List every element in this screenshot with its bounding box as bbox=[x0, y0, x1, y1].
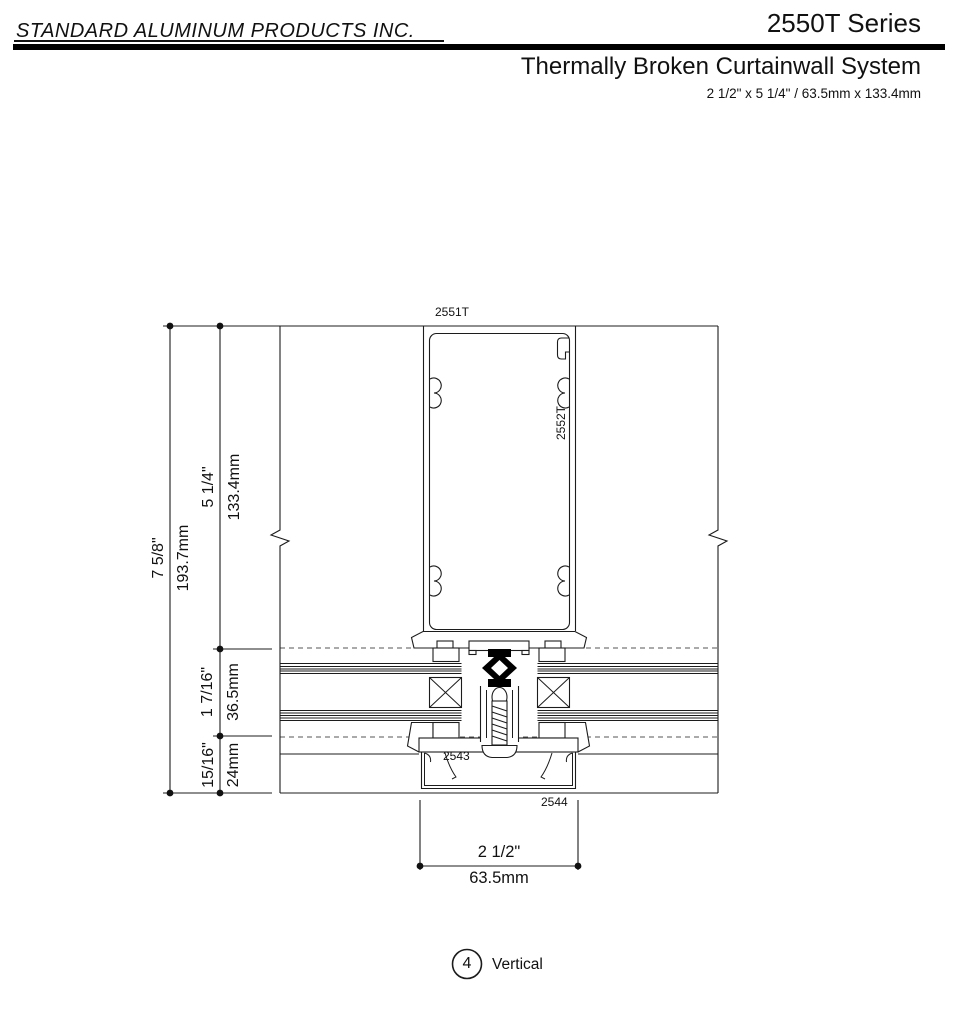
snap-leg-right bbox=[541, 753, 552, 779]
label-adapter: 2552T bbox=[553, 393, 569, 453]
thermal-break bbox=[482, 649, 517, 687]
gasket-lower-left bbox=[433, 723, 459, 739]
wall-line-right bbox=[709, 326, 727, 793]
drawing-sheet: STANDARD ALUMINUM PRODUCTS INC. 2550T Se… bbox=[0, 0, 957, 1024]
dim-bottom-inches: 15/16" bbox=[199, 705, 219, 825]
dim-overall-inches: 7 5/8" bbox=[149, 498, 169, 618]
screw-head bbox=[482, 746, 517, 758]
gasket-lower-right bbox=[539, 723, 565, 739]
dim-bottom-mm: 24mm bbox=[224, 705, 244, 825]
gasket-right bbox=[539, 648, 565, 662]
dim-width-mm: 63.5mm bbox=[449, 869, 549, 888]
detail-name: Vertical bbox=[492, 956, 543, 974]
dim-top-inches: 5 1/4" bbox=[199, 427, 219, 547]
detail-number: 4 bbox=[452, 955, 482, 973]
dim-width-inches: 2 1/2" bbox=[449, 843, 549, 862]
glazing-right bbox=[538, 664, 719, 721]
mullion-body bbox=[424, 326, 576, 631]
gasket-left bbox=[433, 648, 459, 662]
label-pressure-plate: 2543 bbox=[443, 749, 470, 763]
glazing-left bbox=[280, 664, 462, 721]
dim-overall-mm: 193.7mm bbox=[174, 498, 194, 618]
label-cover-cap: 2544 bbox=[541, 795, 568, 809]
dim-top-mm: 133.4mm bbox=[225, 427, 245, 547]
label-mullion: 2551T bbox=[424, 305, 480, 319]
wall-line-left bbox=[271, 326, 289, 793]
